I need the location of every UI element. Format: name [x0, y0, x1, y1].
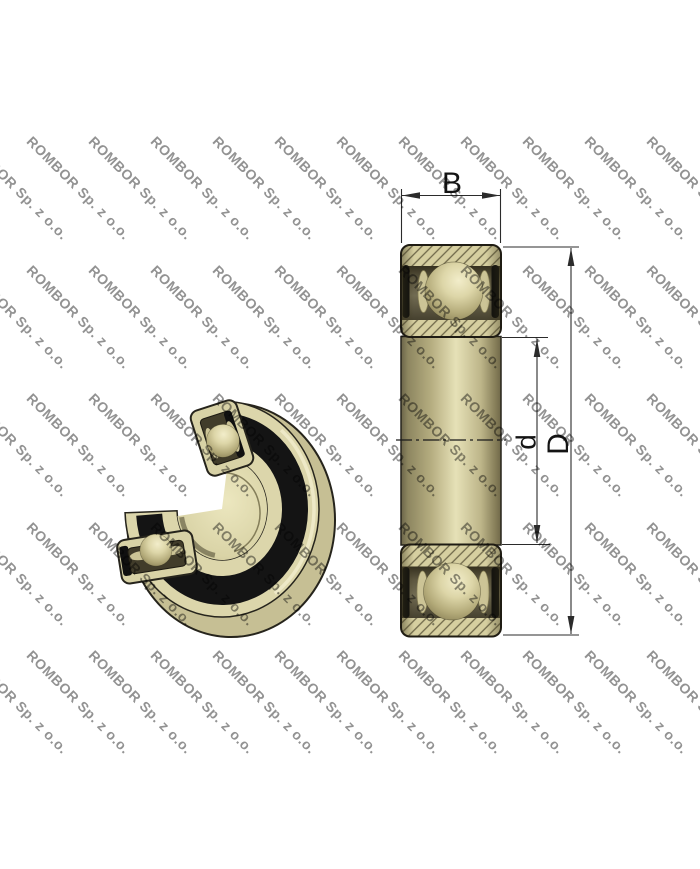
arrowhead [482, 192, 500, 199]
arrowhead [402, 192, 420, 199]
dim-label-B: B [442, 167, 462, 200]
bearing-section-view [396, 245, 506, 637]
dim-label-D: D [542, 433, 575, 455]
bearing-drawing: B d D [0, 0, 700, 869]
section-bottom-ring [401, 545, 501, 637]
top-ring-shading [401, 245, 501, 337]
bearing-product-image: B d D ROMBOR Sp. z o.o.ROMBOR Sp. z o.o.… [0, 0, 700, 869]
bore-body [401, 337, 501, 546]
arrowhead [534, 525, 541, 543]
bottom-ring-shading [401, 545, 501, 637]
dim-label-d: d [511, 434, 542, 450]
arrowhead [568, 248, 575, 266]
bearing-3d-view [116, 398, 335, 637]
arrowhead [568, 616, 575, 634]
arrowhead [534, 339, 541, 357]
section-top-ring [401, 245, 501, 337]
section-bore [396, 337, 506, 546]
